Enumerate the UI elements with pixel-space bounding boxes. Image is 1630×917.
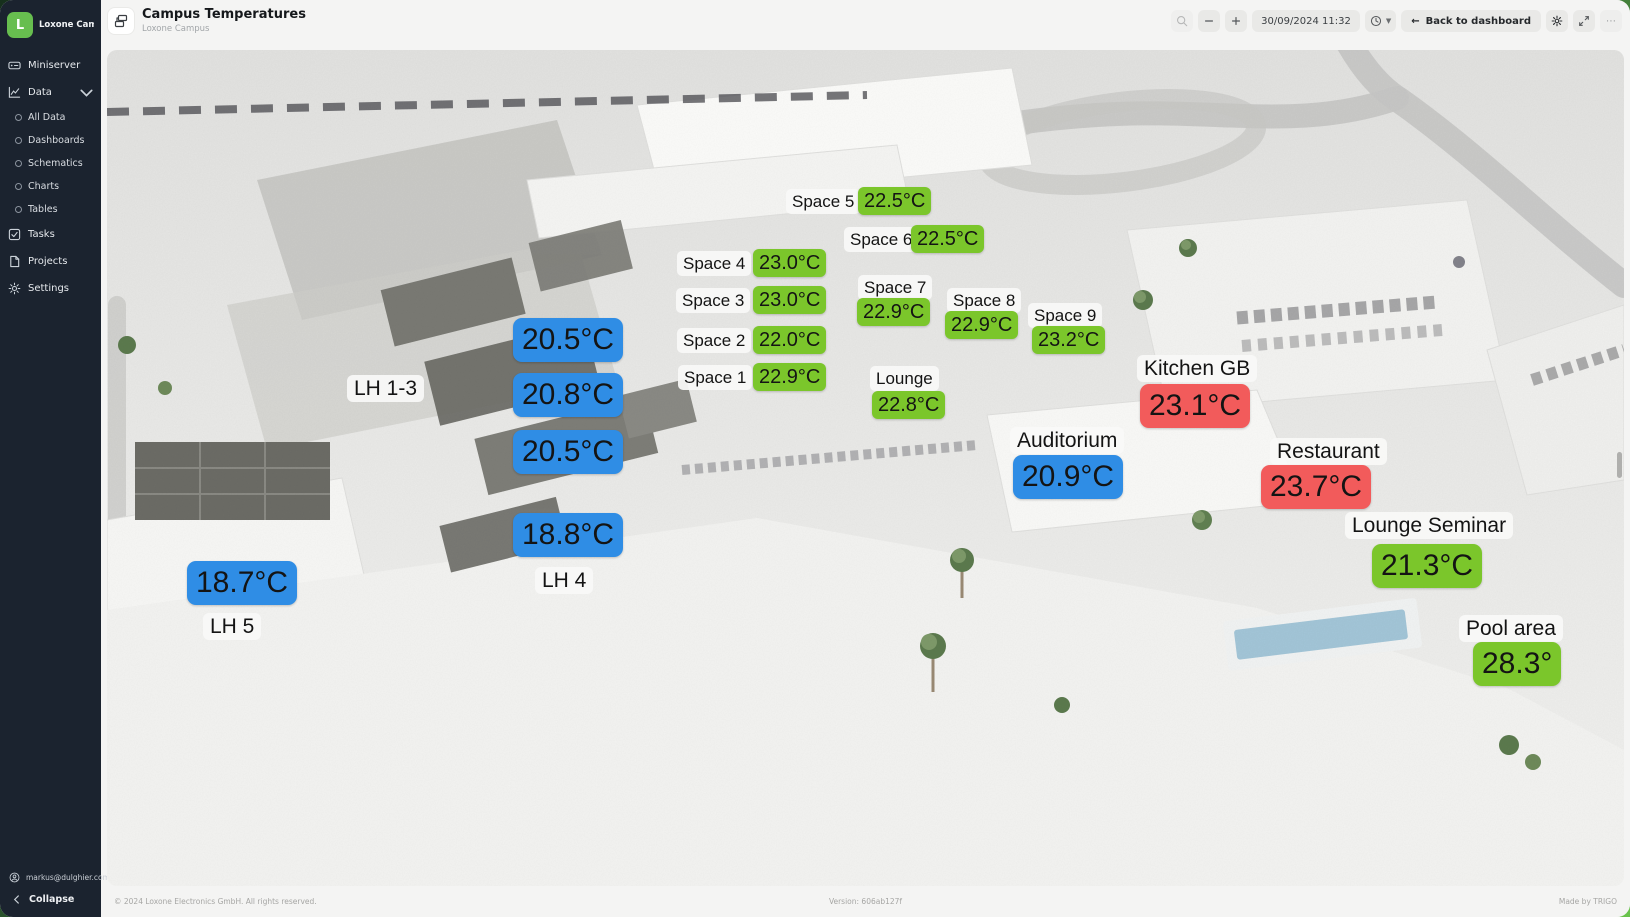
user-email: markus@dulghier.com	[26, 873, 110, 882]
sensor-name-chip: Auditorium	[1010, 427, 1124, 454]
back-to-dashboard-label: Back to dashboard	[1426, 16, 1531, 27]
sensor-name-chip: Kitchen GB	[1137, 355, 1257, 382]
sidebar-item-settings[interactable]: Settings	[0, 275, 101, 302]
sensor-value-chip[interactable]: 20.9°C	[1013, 455, 1123, 499]
sensor-value-chip[interactable]: 21.3°C	[1372, 544, 1482, 588]
chevron-down-icon	[80, 89, 93, 97]
sensor-value-chip[interactable]: 22.9°C	[753, 363, 826, 391]
sensor-value-chip[interactable]: 22.9°C	[857, 298, 930, 326]
sidebar-nav: Miniserver Data All Data Dashboards Sche…	[0, 52, 101, 302]
datetime-button[interactable]: 30/09/2024 11:32	[1252, 10, 1360, 32]
version-text: Version: 606ab127f	[829, 897, 902, 906]
time-range-button[interactable]: ▼	[1365, 10, 1396, 32]
sensor-value-chip[interactable]: 22.0°C	[753, 326, 826, 354]
zoom-out-button[interactable]	[1198, 10, 1220, 32]
circle-bullet-icon	[15, 114, 22, 121]
sensor-name-chip: LH 5	[203, 613, 261, 640]
sensor-name-chip: Space 6	[844, 227, 918, 252]
sensor-name-chip: Space 7	[858, 275, 932, 300]
circle-bullet-icon	[15, 206, 22, 213]
back-arrow-icon: ←	[1411, 16, 1419, 27]
sensor-value-chip[interactable]: 20.5°C	[513, 318, 623, 362]
search-icon	[1176, 15, 1188, 27]
zoom-in-button[interactable]	[1225, 10, 1247, 32]
caret-down-icon: ▼	[1386, 17, 1391, 25]
user-icon	[8, 872, 21, 883]
sidebar-item-projects[interactable]: Projects	[0, 248, 101, 275]
header-controls: 30/09/2024 11:32 ▼ ← Back to dashboard	[1171, 10, 1622, 32]
sensor-value-chip[interactable]: 20.8°C	[513, 373, 623, 417]
status-bar: © 2024 Loxone Electronics GmbH. All righ…	[101, 886, 1630, 917]
workspace-name: Loxone Campus...	[39, 20, 94, 30]
sensor-value-chip[interactable]: 23.0°C	[753, 286, 826, 314]
sidebar-subitem-label: Schematics	[28, 158, 83, 169]
sidebar: L Loxone Campus... Miniserver Data All D…	[0, 0, 101, 917]
minus-icon	[1203, 15, 1215, 27]
sidebar-item-label: Data	[28, 87, 52, 98]
more-options-button[interactable]: ⋯	[1600, 10, 1622, 32]
sidebar-item-label: Tasks	[28, 229, 55, 240]
sensor-name-chip: Space 3	[676, 288, 750, 313]
circle-bullet-icon	[15, 160, 22, 167]
campus-map[interactable]: Space 522.5°CSpace 622.5°CSpace 423.0°CS…	[107, 50, 1624, 886]
sensor-value-chip[interactable]: 22.9°C	[945, 311, 1018, 339]
collapse-label: Collapse	[29, 894, 74, 905]
sensor-value-chip[interactable]: 18.7°C	[187, 561, 297, 605]
datetime-value: 30/09/2024 11:32	[1261, 16, 1351, 27]
fullscreen-button[interactable]	[1573, 10, 1595, 32]
gear-icon	[1551, 15, 1563, 27]
sensor-value-chip[interactable]: 23.7°C	[1261, 465, 1371, 509]
sidebar-item-tasks[interactable]: Tasks	[0, 221, 101, 248]
workspace-logo: L	[7, 12, 33, 38]
map-scrollbar[interactable]	[1617, 452, 1622, 478]
sensor-name-chip: Space 5	[786, 189, 860, 214]
sensor-value-chip[interactable]: 22.8°C	[872, 391, 945, 419]
sensor-name-chip: Space 9	[1028, 303, 1102, 328]
zoom-reset-button[interactable]	[1171, 10, 1193, 32]
workspace-switcher[interactable]: L Loxone Campus...	[0, 0, 101, 52]
user-account[interactable]: markus@dulghier.com	[8, 867, 93, 888]
back-to-dashboard-button[interactable]: ← Back to dashboard	[1401, 10, 1541, 32]
sensor-name-chip: Lounge Seminar	[1345, 512, 1513, 539]
settings-button[interactable]	[1546, 10, 1568, 32]
sensor-value-chip[interactable]: 23.1°C	[1140, 384, 1250, 428]
sidebar-item-miniserver[interactable]: Miniserver	[0, 52, 101, 79]
fullscreen-icon	[1578, 15, 1590, 27]
sensor-name-chip: Space 1	[678, 365, 752, 390]
server-icon	[8, 59, 21, 72]
sensor-name-chip: LH 4	[535, 567, 593, 594]
main-content: Campus Temperatures Loxone Campus 30/09/…	[101, 0, 1630, 917]
schematic-icon	[114, 14, 128, 28]
sidebar-footer: markus@dulghier.com Collapse	[0, 861, 101, 917]
sensor-overlay-layer: Space 522.5°CSpace 622.5°CSpace 423.0°CS…	[107, 50, 1624, 886]
checklist-icon	[8, 228, 21, 241]
sidebar-item-schematics[interactable]: Schematics	[0, 152, 101, 175]
circle-bullet-icon	[15, 137, 22, 144]
sensor-value-chip[interactable]: 23.2°C	[1032, 326, 1105, 354]
chart-line-icon	[8, 86, 21, 99]
sidebar-item-all-data[interactable]: All Data	[0, 106, 101, 129]
sidebar-item-dashboards[interactable]: Dashboards	[0, 129, 101, 152]
sensor-name-chip: Space 8	[947, 288, 1021, 313]
gear-icon	[8, 282, 21, 295]
sensor-name-chip: Restaurant	[1270, 438, 1387, 465]
page-subtitle: Loxone Campus	[142, 24, 306, 34]
page-titles: Campus Temperatures Loxone Campus	[142, 8, 306, 34]
page-title: Campus Temperatures	[142, 8, 306, 23]
sensor-value-chip[interactable]: 20.5°C	[513, 430, 623, 474]
history-clock-icon	[1370, 15, 1382, 27]
page-header: Campus Temperatures Loxone Campus 30/09/…	[101, 0, 1630, 42]
workspace-logo-letter: L	[16, 18, 24, 33]
sensor-value-chip[interactable]: 28.3°	[1473, 642, 1561, 686]
sidebar-item-label: Miniserver	[28, 60, 80, 71]
sidebar-item-tables[interactable]: Tables	[0, 198, 101, 221]
sensor-value-chip[interactable]: 23.0°C	[753, 249, 826, 277]
copyright-text: © 2024 Loxone Electronics GmbH. All righ…	[114, 897, 317, 906]
sensor-value-chip[interactable]: 18.8°C	[513, 513, 623, 557]
app-window: L Loxone Campus... Miniserver Data All D…	[0, 0, 1630, 917]
sidebar-subitem-label: Tables	[28, 204, 58, 215]
sidebar-subitem-label: Charts	[28, 181, 59, 192]
sidebar-item-data[interactable]: Data	[0, 79, 101, 106]
sidebar-item-charts[interactable]: Charts	[0, 175, 101, 198]
circle-bullet-icon	[15, 183, 22, 190]
schematic-title-button[interactable]	[108, 8, 134, 34]
sensor-value-chip[interactable]: 22.5°C	[911, 225, 984, 253]
sidebar-item-label: Projects	[28, 256, 67, 267]
sensor-name-chip: Lounge	[870, 366, 939, 391]
sensor-name-chip: Pool area	[1459, 615, 1563, 642]
credit-text: Made by TRIGO	[1559, 897, 1617, 906]
sensor-name-chip: Space 2	[677, 328, 751, 353]
chevron-left-icon	[10, 895, 23, 904]
sensor-value-chip[interactable]: 22.5°C	[858, 187, 931, 215]
sidebar-subitem-label: Dashboards	[28, 135, 85, 146]
document-icon	[8, 255, 21, 268]
collapse-sidebar-button[interactable]: Collapse	[8, 888, 93, 905]
ellipsis-icon: ⋯	[1606, 16, 1616, 27]
sensor-name-chip: Space 4	[677, 251, 751, 276]
sidebar-item-label: Settings	[28, 283, 69, 294]
plus-icon	[1230, 15, 1242, 27]
sensor-name-chip: LH 1-3	[347, 375, 424, 402]
sidebar-subitem-label: All Data	[28, 112, 65, 123]
